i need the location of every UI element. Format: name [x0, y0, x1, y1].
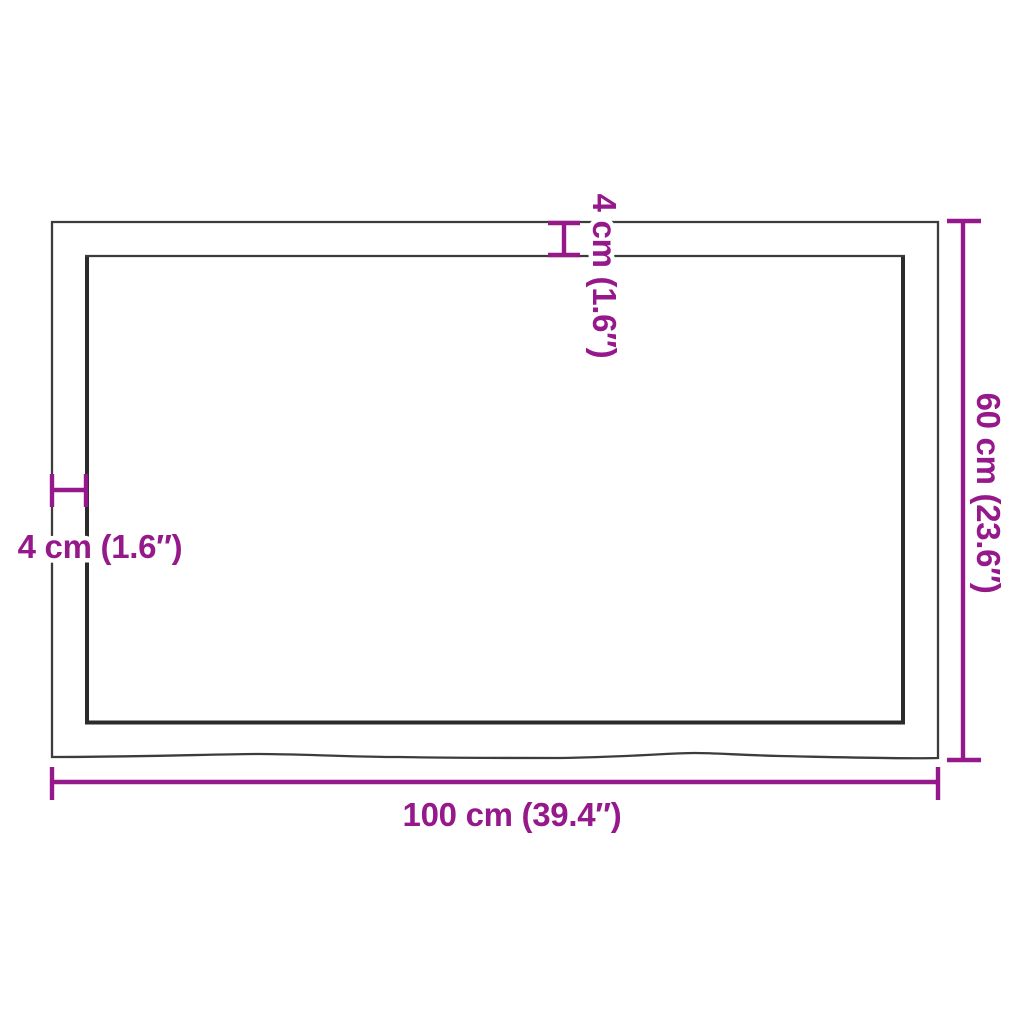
width-dimension-label: 100 cm (39.4″)	[403, 796, 622, 833]
dimension-diagram: 100 cm (39.4″) 60 cm (23.6″) 4 cm (1.6″)…	[0, 0, 1024, 1024]
edge-left-dimension-label: 4 cm (1.6″)	[18, 528, 183, 565]
edge-top-dimension-label: 4 cm (1.6″)	[586, 194, 623, 359]
board-outer-outline	[52, 222, 938, 758]
diagram-canvas: 100 cm (39.4″) 60 cm (23.6″) 4 cm (1.6″)…	[0, 0, 1024, 1024]
depth-dimension-label: 60 cm (23.6″)	[970, 393, 1007, 594]
